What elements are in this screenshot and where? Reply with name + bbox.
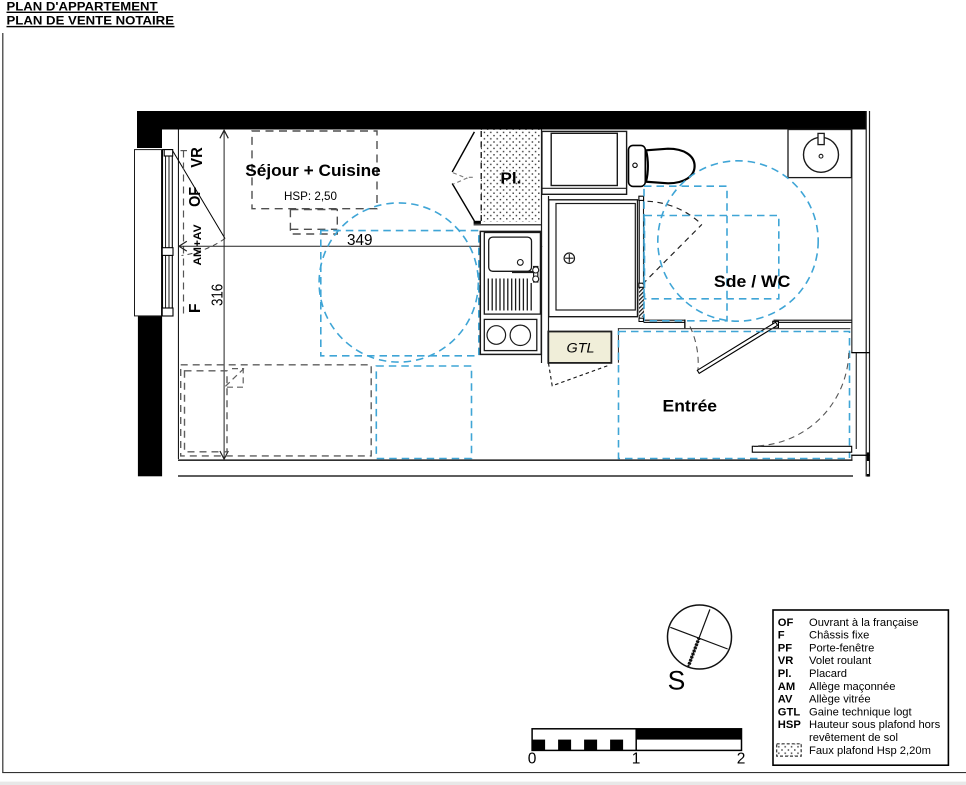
svg-text:316: 316 [210,284,227,306]
svg-text:Placard: Placard [809,668,847,680]
svg-text:349: 349 [347,232,373,249]
svg-text:2: 2 [737,751,746,768]
svg-text:Volet roulant: Volet roulant [809,655,872,667]
svg-text:OF: OF [187,187,204,207]
svg-text:Ouvrant à la française: Ouvrant à la française [809,617,918,629]
svg-text:HSP: HSP [778,719,802,731]
svg-text:Gaine technique logt: Gaine technique logt [809,706,913,718]
svg-text:PLAN D'APPARTEMENT: PLAN D'APPARTEMENT [7,1,158,13]
svg-text:GTL: GTL [567,341,595,356]
svg-text:F: F [778,630,785,642]
svg-text:Pl.: Pl. [778,668,792,680]
svg-text:PF: PF [778,642,792,654]
svg-text:revêtement de sol: revêtement de sol [809,732,898,744]
svg-text:AM: AM [778,681,795,693]
svg-text:Allège maçonnée: Allège maçonnée [809,681,895,693]
svg-text:VR: VR [778,655,794,667]
svg-text:OF: OF [778,617,794,629]
svg-text:1: 1 [632,751,641,768]
svg-text:Séjour + Cuisine: Séjour + Cuisine [245,162,381,180]
svg-text:Faux plafond Hsp 2,20m: Faux plafond Hsp 2,20m [809,745,931,757]
svg-text:Allège vitrée: Allège vitrée [809,694,871,706]
svg-text:GTL: GTL [778,706,801,718]
svg-text:AV: AV [778,694,793,706]
svg-text:Entrée: Entrée [663,398,718,416]
svg-text:PLAN DE VENTE NOTAIRE: PLAN DE VENTE NOTAIRE [7,16,175,28]
svg-text:F: F [187,304,204,313]
svg-text:Hauteur sous plafond hors: Hauteur sous plafond hors [809,719,941,731]
svg-text:Pl.: Pl. [500,171,521,188]
svg-text:0: 0 [528,751,537,768]
svg-text:S: S [668,666,686,696]
svg-text:Châssis fixe: Châssis fixe [809,630,869,642]
svg-text:VR: VR [189,147,206,168]
svg-text:Sde / WC: Sde / WC [714,273,791,291]
svg-text:HSP: 2,50: HSP: 2,50 [284,189,337,203]
svg-text:AM+AV: AM+AV [192,224,204,266]
svg-text:Porte-fenêtre: Porte-fenêtre [809,642,874,654]
